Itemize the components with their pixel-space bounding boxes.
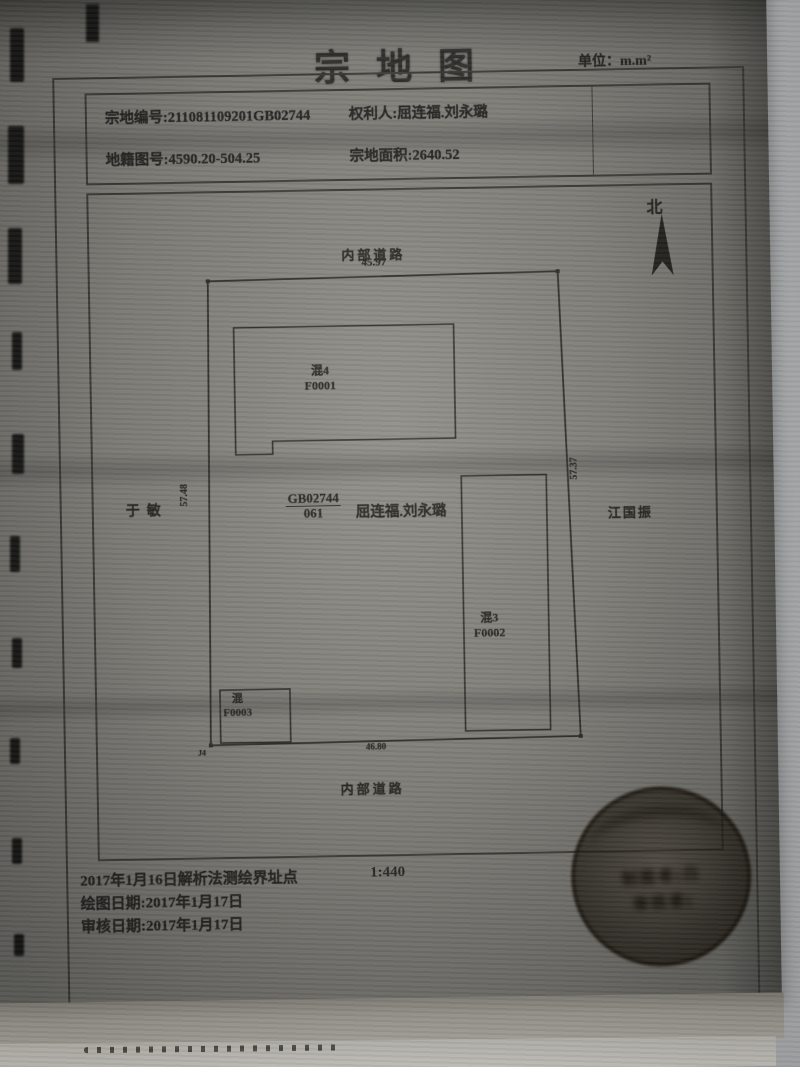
north-arrow-icon [651, 213, 674, 275]
binder-mark [14, 934, 24, 956]
neighbor-right: 江国振 [608, 502, 653, 522]
parcel-owner-label: 屈连福.刘永璐 [356, 499, 447, 522]
binder-mark [8, 228, 22, 284]
header-row-2: 地籍图号:4590.20-504.25 宗地面积:2640.52 [87, 141, 587, 150]
binder-mark [8, 126, 24, 184]
building-3-label: 混 F0003 [223, 693, 252, 721]
scanned-page: 宗地图 单位：m.m² 宗地编号:211081109201GB02744 权利人… [0, 0, 800, 1067]
binder-mark [12, 838, 22, 864]
building-1-type: 混4 [304, 363, 336, 379]
cadastral-sheet-number: 地籍图号:4590.20-504.25 [105, 146, 260, 170]
north-label: 北 [646, 193, 662, 217]
binder-mark [10, 28, 24, 82]
drawing-date: 绘图日期:2017年1月17日 [80, 890, 243, 914]
parcel-code-fraction: GB02744 061 [285, 491, 341, 522]
boundary-point [206, 279, 210, 283]
header-row-1: 宗地编号:211081109201GB02744 权利人:屈连福.刘永璐 [87, 99, 587, 108]
building-1-label: 混4 F0001 [304, 363, 336, 394]
dimension-right: 57.37 [569, 457, 580, 480]
building-2-outline [461, 474, 550, 730]
parcel-area: 宗地面积:2640.52 [349, 143, 459, 166]
dimension-bottom: 46.80 [366, 741, 386, 751]
header-divider [591, 87, 594, 175]
neighbor-left: 于敏 [126, 500, 168, 521]
building-2-code: F0002 [474, 625, 506, 641]
building-1-code: F0001 [304, 378, 336, 394]
parcel-subcode: 061 [286, 506, 342, 521]
road-label-bottom: 内部道路 [340, 778, 404, 798]
dimension-left: 57.48 [179, 484, 190, 507]
binder-mark [12, 434, 24, 474]
building-3-code: F0003 [223, 706, 252, 720]
map-box: 北 内部道路 内部道路 45.97 46.80 57.48 57.37 于敏 江… [86, 183, 724, 862]
rights-holder: 权利人:屈连福.刘永璐 [349, 100, 488, 123]
corner-point-label: J4 [198, 748, 206, 757]
printed-content: 宗地图 单位：m.m² 宗地编号:211081109201GB02744 权利人… [43, 20, 760, 1024]
perforation-dots [84, 1044, 340, 1053]
building-1-outline [234, 324, 456, 455]
boundary-point [209, 743, 213, 747]
parcel-drawing [88, 185, 721, 860]
binder-mark [12, 332, 22, 370]
binder-mark [12, 638, 22, 668]
header-box: 宗地编号:211081109201GB02744 权利人:屈连福.刘永璐 地籍图… [84, 83, 712, 186]
dimension-top: 45.97 [361, 256, 386, 268]
scan-artifact [86, 4, 99, 42]
binder-mark [10, 738, 20, 764]
survey-method-note: 2017年1月16日解析法测绘界址点 [80, 866, 298, 891]
building-3-type: 混 [223, 693, 252, 707]
building-2-type: 混3 [474, 610, 506, 626]
boundary-point [579, 734, 583, 738]
building-2-label: 混3 F0002 [474, 610, 506, 641]
map-scale: 1:440 [370, 864, 405, 882]
boundary-point [556, 269, 560, 273]
binder-mark [10, 536, 20, 572]
audit-date: 审核日期:2017年1月17日 [81, 913, 244, 937]
parcel-number: 宗地编号:211081109201GB02744 [105, 104, 311, 129]
